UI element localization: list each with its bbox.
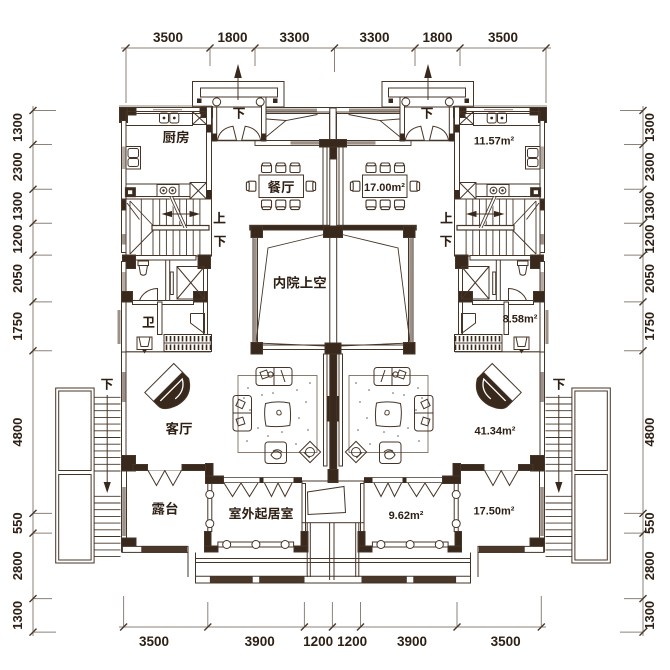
svg-text:9.62m²: 9.62m² — [389, 510, 424, 522]
svg-text:1200: 1200 — [337, 634, 367, 649]
svg-text:1750: 1750 — [10, 312, 25, 341]
svg-text:1300: 1300 — [642, 192, 657, 221]
svg-text:3500: 3500 — [139, 634, 169, 649]
svg-text:1300: 1300 — [10, 192, 25, 221]
svg-text:2050: 2050 — [10, 264, 25, 293]
svg-text:1200: 1200 — [303, 634, 333, 649]
svg-text:17.50m²: 17.50m² — [474, 506, 515, 518]
svg-text:2300: 2300 — [642, 152, 657, 181]
svg-text:17.00m²: 17.00m² — [364, 182, 405, 194]
svg-text:3500: 3500 — [491, 634, 521, 649]
svg-text:1750: 1750 — [642, 312, 657, 341]
svg-text:1200: 1200 — [642, 225, 657, 254]
svg-text:3500: 3500 — [488, 30, 518, 45]
svg-text:3300: 3300 — [359, 30, 389, 45]
svg-text:1300: 1300 — [642, 113, 657, 142]
svg-text:4800: 4800 — [642, 418, 657, 447]
svg-text:1800: 1800 — [422, 30, 452, 45]
svg-text:3900: 3900 — [245, 634, 275, 649]
svg-text:1200: 1200 — [10, 225, 25, 254]
svg-text:1300: 1300 — [10, 113, 25, 142]
svg-text:1300: 1300 — [642, 601, 657, 630]
svg-text:550: 550 — [10, 512, 25, 534]
svg-text:3500: 3500 — [153, 30, 183, 45]
svg-text:2800: 2800 — [10, 551, 25, 580]
svg-text:3300: 3300 — [279, 30, 309, 45]
svg-text:41.34m²: 41.34m² — [475, 426, 516, 438]
svg-text:1300: 1300 — [10, 601, 25, 630]
svg-text:8.58m²: 8.58m² — [503, 314, 538, 326]
svg-text:1800: 1800 — [217, 30, 247, 45]
svg-text:2050: 2050 — [642, 264, 657, 293]
svg-text:2300: 2300 — [10, 152, 25, 181]
svg-text:2800: 2800 — [642, 551, 657, 580]
svg-text:11.57m²: 11.57m² — [474, 136, 515, 148]
svg-text:4800: 4800 — [10, 418, 25, 447]
svg-text:550: 550 — [642, 512, 657, 534]
svg-text:3900: 3900 — [397, 634, 427, 649]
